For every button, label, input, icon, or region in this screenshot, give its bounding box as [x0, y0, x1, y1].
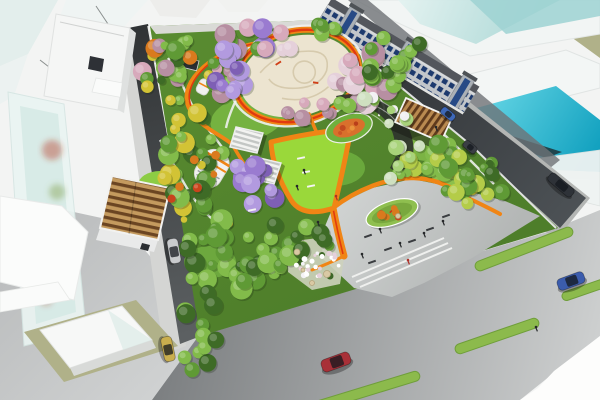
rock: [396, 214, 401, 219]
rock: [294, 249, 300, 255]
rock: [324, 271, 331, 278]
rock: [310, 281, 315, 286]
building-west: [44, 14, 136, 113]
park-aerial-rendering: [0, 0, 600, 400]
rendering-stage: [0, 0, 600, 400]
rock: [301, 268, 305, 272]
